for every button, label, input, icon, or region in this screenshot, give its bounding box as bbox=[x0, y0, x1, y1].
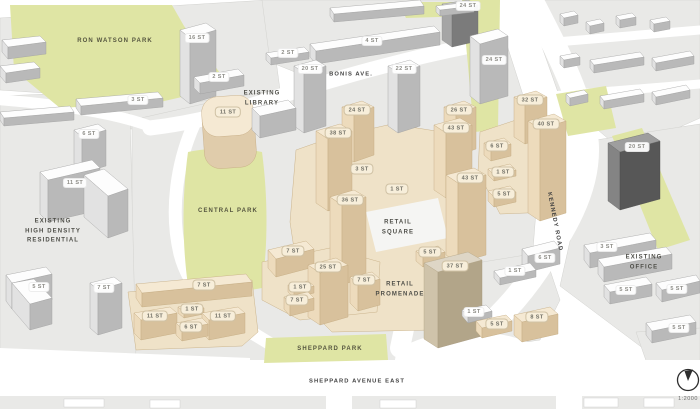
building-height-label: 37 ST bbox=[442, 261, 469, 272]
building-height-label: 4 ST bbox=[361, 36, 382, 46]
building-height-label: 22 ST bbox=[392, 64, 417, 74]
building-height-label: 24 ST bbox=[456, 1, 481, 11]
label-ron-watson-park: RON WATSON PARK bbox=[77, 37, 153, 47]
building-height-label: 25 ST bbox=[315, 262, 342, 273]
building-height-label: 8 ST bbox=[525, 312, 548, 323]
building-height-label: 2 ST bbox=[277, 48, 298, 58]
building-height-label: 11 ST bbox=[210, 311, 236, 322]
building-height-label: 43 ST bbox=[457, 173, 484, 184]
building-height-label: 11 ST bbox=[63, 178, 87, 188]
building-height-label: 6 ST bbox=[485, 141, 508, 152]
building-height-label: 1 ST bbox=[463, 307, 484, 317]
building-height-label: 5 ST bbox=[668, 323, 689, 333]
building-height-label: 1 ST bbox=[180, 304, 203, 315]
label-central-park: CENTRAL PARK bbox=[198, 207, 258, 217]
building-height-label: 11 ST bbox=[142, 311, 168, 322]
building-height-label: 1 ST bbox=[385, 184, 408, 195]
building-height-label: 20 ST bbox=[298, 64, 323, 74]
building-height-label: 6 ST bbox=[179, 322, 202, 333]
building-height-label: 7 ST bbox=[93, 283, 114, 293]
building-height-label: 24 ST bbox=[344, 105, 371, 116]
building-height-label: 43 ST bbox=[443, 123, 470, 134]
label-sheppard-avenue-east: SHEPPARD AVENUE EAST bbox=[309, 377, 405, 386]
building-height-label: 6 ST bbox=[534, 253, 555, 263]
scale-label: 1:2000 bbox=[678, 396, 698, 402]
building-height-label: 26 ST bbox=[446, 105, 473, 116]
building-height-label: 36 ST bbox=[337, 195, 364, 206]
label-bonis-ave: BONIS AVE. bbox=[329, 70, 373, 79]
building-height-label: 5 ST bbox=[28, 282, 49, 292]
north-arrow-icon bbox=[678, 370, 699, 391]
building-height-label: 3 ST bbox=[350, 164, 373, 175]
building-height-label: 5 ST bbox=[492, 189, 515, 200]
label-sheppard-park: SHEPPARD PARK bbox=[297, 345, 362, 355]
site-plan-scene: RON WATSON PARK EXISTING LIBRARY BONIS A… bbox=[0, 0, 700, 409]
label-existing-office: EXISTING OFFICE bbox=[626, 253, 663, 272]
building-height-label: 7 ST bbox=[352, 275, 375, 286]
building-height-label: 32 ST bbox=[517, 95, 544, 106]
building-height-label: 1 ST bbox=[504, 266, 525, 276]
building-height-label: 7 ST bbox=[192, 280, 215, 291]
building-height-label: 1 ST bbox=[288, 282, 311, 293]
building-height-label: 16 ST bbox=[185, 33, 210, 43]
label-retail-promenade: RETAIL PROMENADE bbox=[376, 280, 425, 299]
building-height-label: 7 ST bbox=[285, 295, 308, 306]
label-existing-library: EXISTING LIBRARY bbox=[244, 89, 281, 108]
building-height-label: 24 ST bbox=[482, 55, 507, 65]
building-height-label: 38 ST bbox=[325, 128, 352, 139]
building-height-label: 11 ST bbox=[215, 107, 241, 118]
building-height-label: 40 ST bbox=[533, 119, 560, 130]
building-height-label: 5 ST bbox=[615, 285, 636, 295]
building-height-label: 20 ST bbox=[625, 142, 650, 152]
building-height-label: 3 ST bbox=[127, 95, 148, 105]
building-height-label: 5 ST bbox=[666, 284, 687, 294]
label-retail-square: RETAIL SQUARE bbox=[382, 218, 414, 237]
building-height-label: 5 ST bbox=[418, 247, 441, 258]
building-height-label: 7 ST bbox=[281, 246, 304, 257]
label-existing-high-density-residential: EXISTING HIGH DENSITY RESIDENTIAL bbox=[25, 218, 81, 247]
building-height-label: 3 ST bbox=[596, 242, 617, 252]
building-height-label: 1 ST bbox=[491, 167, 514, 178]
building-height-label: 2 ST bbox=[208, 72, 229, 82]
building-height-label: 5 ST bbox=[485, 319, 508, 330]
building-height-label: 6 ST bbox=[78, 129, 99, 139]
